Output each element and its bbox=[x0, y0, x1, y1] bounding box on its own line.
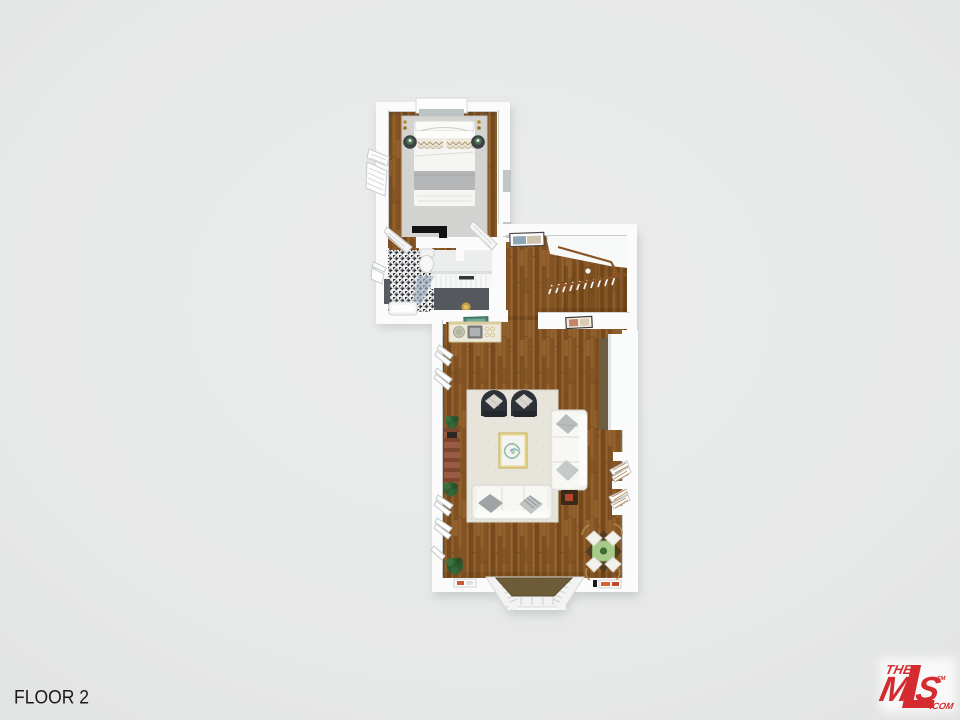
svg-text:.COM: .COM bbox=[929, 701, 955, 711]
svg-text:TM: TM bbox=[936, 676, 946, 682]
svg-text:FLOOR 2: FLOOR 2 bbox=[14, 687, 89, 709]
